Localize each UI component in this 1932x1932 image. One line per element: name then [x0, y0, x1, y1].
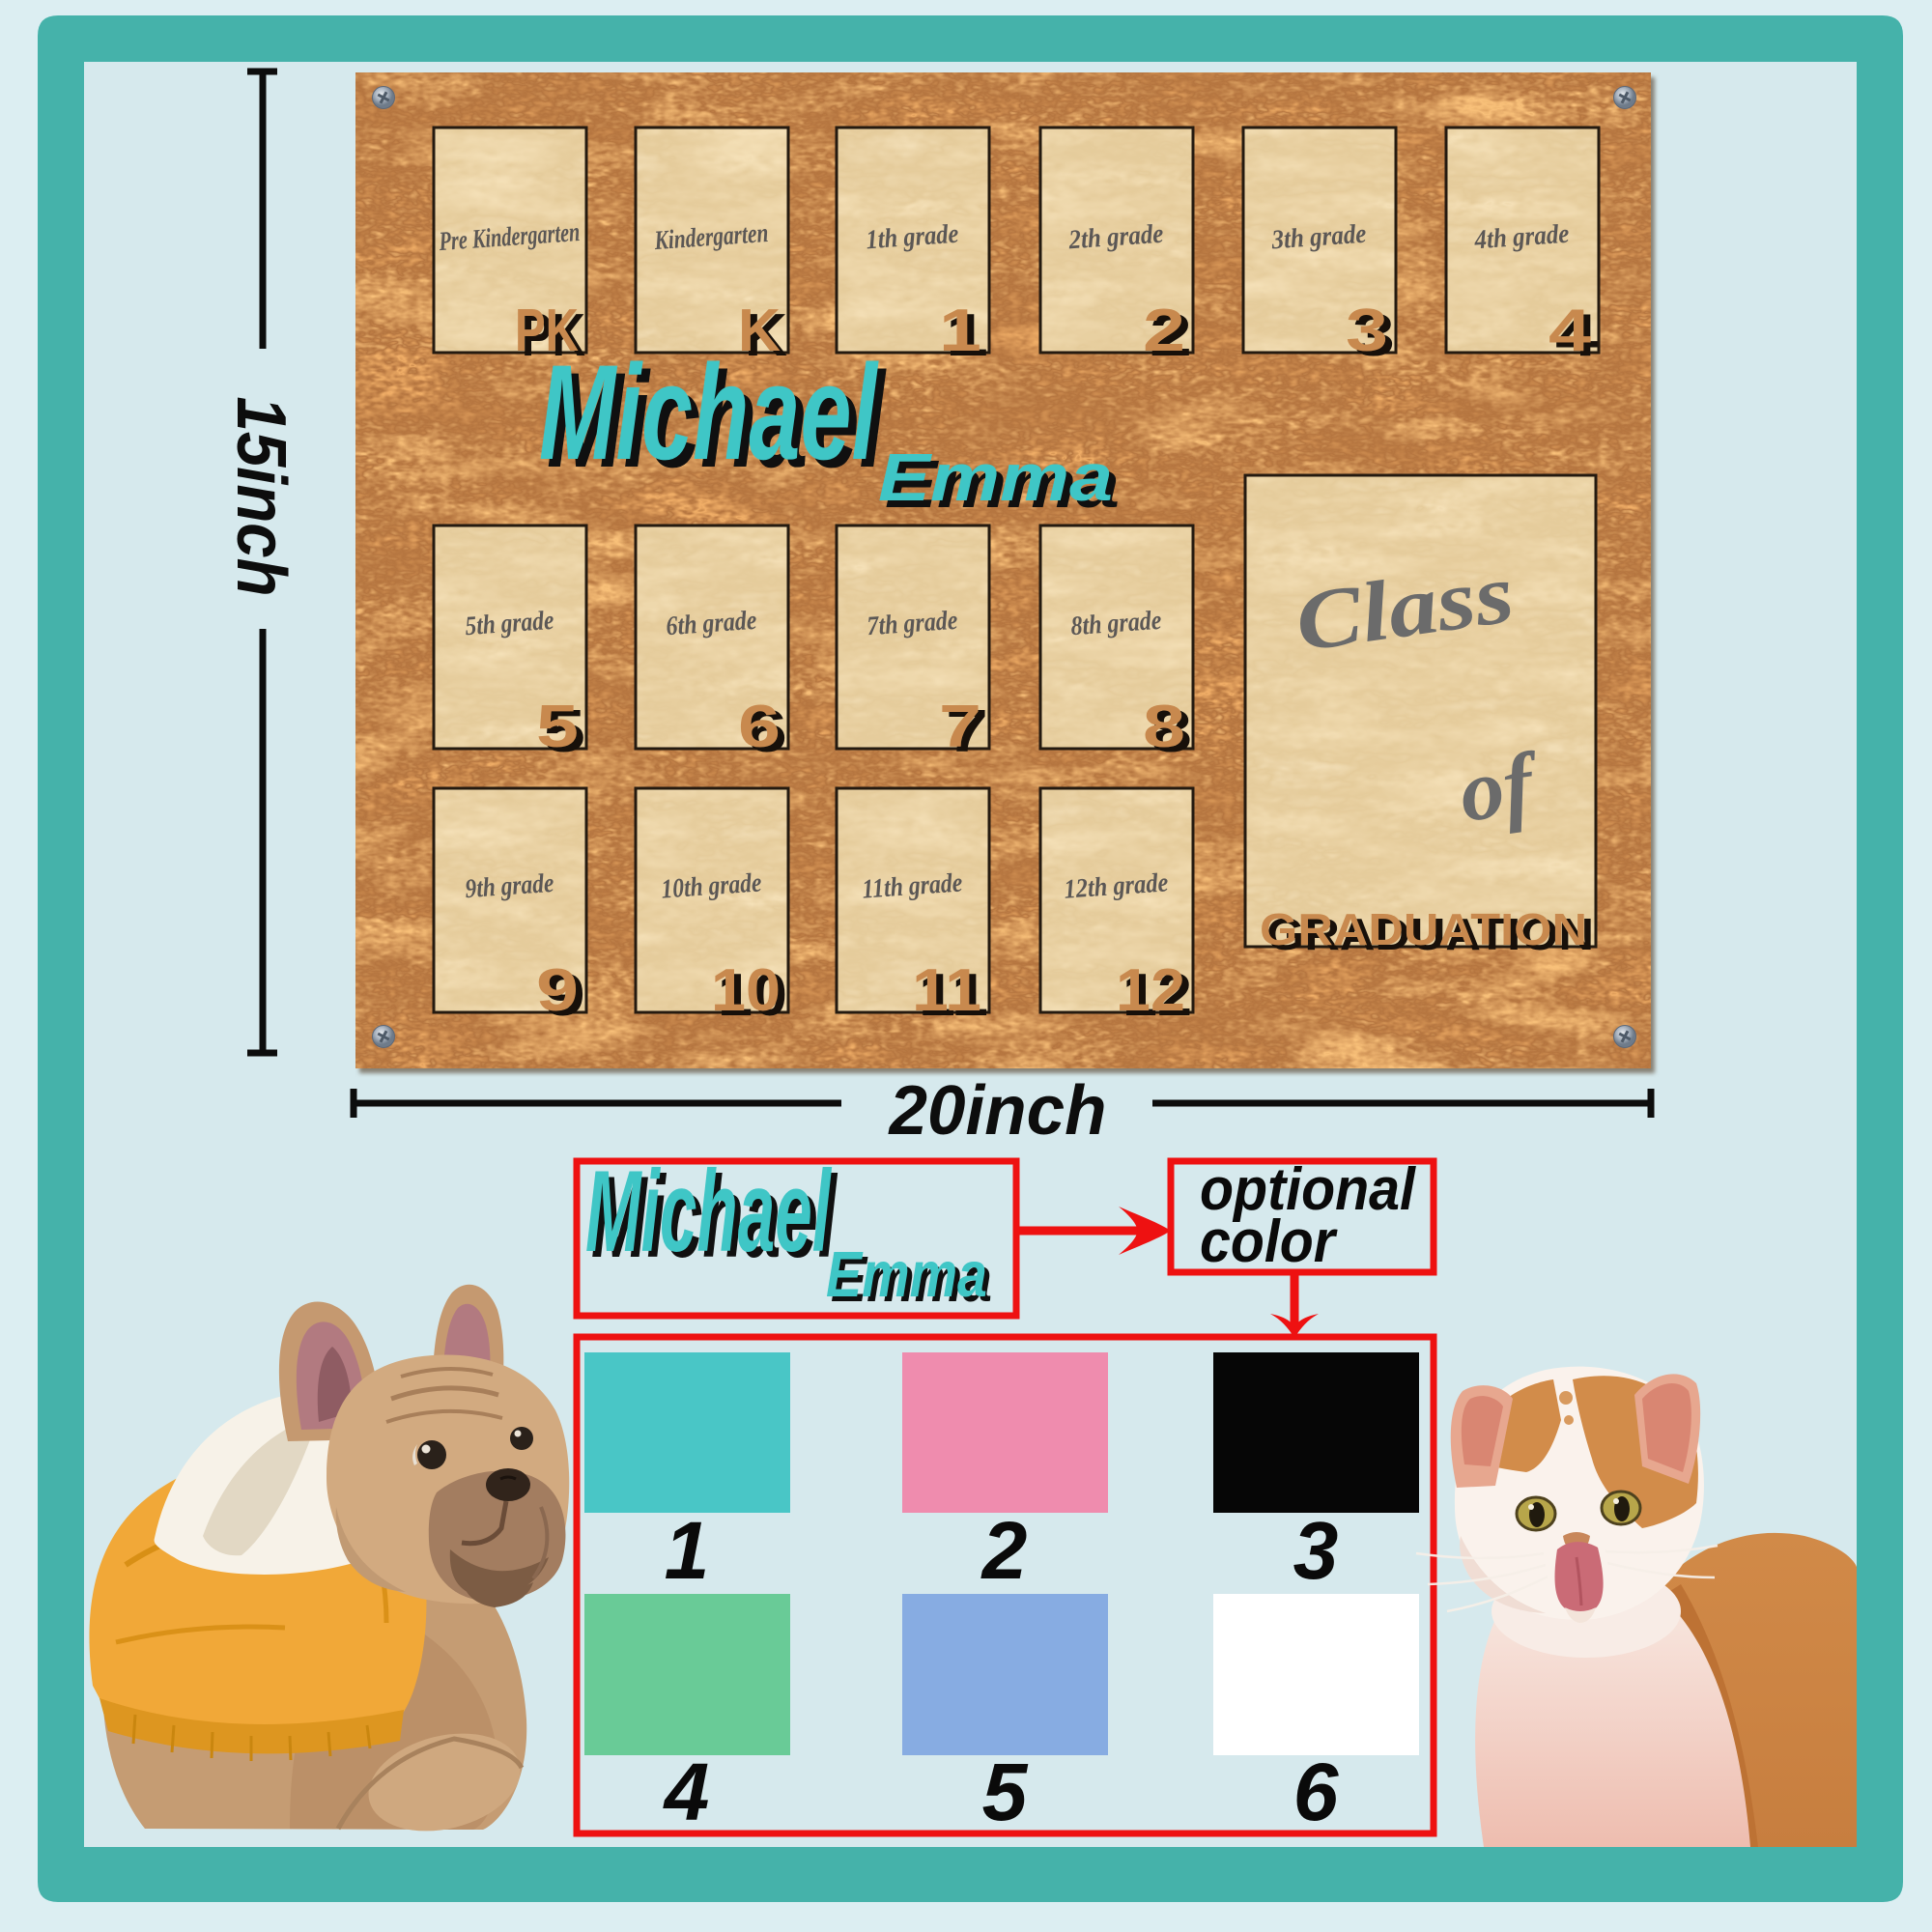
svg-text:3: 3	[1293, 1505, 1339, 1596]
svg-text:8th grade: 8th grade	[1069, 606, 1162, 641]
svg-text:7: 7	[939, 694, 981, 760]
svg-text:1: 1	[665, 1505, 710, 1596]
svg-text:7th grade: 7th grade	[866, 606, 958, 641]
svg-text:Michael: Michael	[539, 336, 879, 488]
svg-text:10: 10	[711, 957, 781, 1024]
svg-text:9th grade: 9th grade	[464, 868, 554, 904]
svg-text:color: color	[1200, 1208, 1338, 1275]
svg-text:2: 2	[1143, 298, 1185, 364]
svg-text:15inch: 15inch	[222, 397, 299, 597]
svg-text:5: 5	[982, 1747, 1029, 1837]
svg-text:4: 4	[663, 1747, 710, 1837]
svg-text:20inch: 20inch	[888, 1072, 1107, 1150]
svg-text:6: 6	[1293, 1747, 1340, 1837]
svg-text:GRADUATION: GRADUATION	[1260, 904, 1587, 954]
svg-text:2: 2	[980, 1505, 1028, 1596]
svg-text:9: 9	[536, 957, 579, 1024]
svg-text:5: 5	[536, 694, 579, 760]
svg-text:6: 6	[738, 694, 781, 760]
svg-text:Emma: Emma	[826, 1238, 987, 1311]
svg-text:5th grade: 5th grade	[464, 606, 554, 641]
svg-text:8: 8	[1143, 694, 1185, 760]
svg-text:1: 1	[939, 298, 981, 364]
svg-text:Emma: Emma	[878, 440, 1113, 515]
svg-text:Michael: Michael	[585, 1147, 833, 1276]
svg-text:3: 3	[1346, 298, 1388, 364]
svg-text:6th grade: 6th grade	[665, 606, 757, 641]
svg-text:11: 11	[912, 957, 981, 1024]
svg-text:4: 4	[1548, 298, 1592, 364]
svg-text:12: 12	[1116, 957, 1185, 1024]
